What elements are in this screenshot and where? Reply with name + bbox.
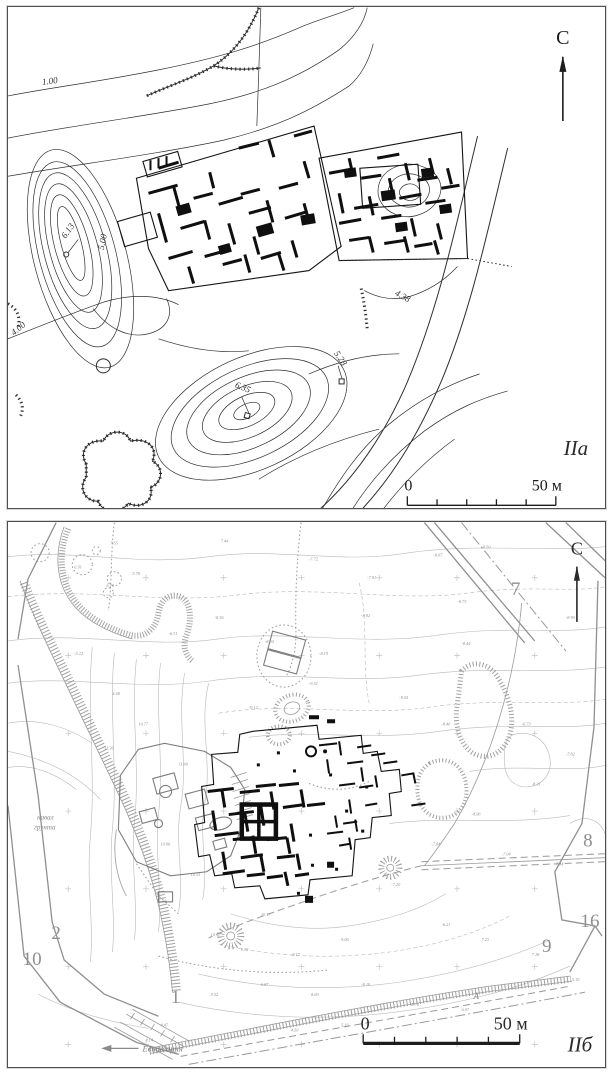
excavation-plan bbox=[117, 126, 511, 291]
benchmark-markers bbox=[64, 239, 344, 418]
map-text: 6.07 bbox=[462, 1007, 470, 1012]
map-text: грунта bbox=[34, 824, 56, 832]
map-annotations: навалгрунта bbox=[34, 814, 56, 832]
map-text: 7.44 bbox=[221, 539, 229, 544]
south-hill-contours bbox=[135, 319, 368, 507]
map-text: -8.56 bbox=[215, 615, 225, 620]
map-text: -7.04 bbox=[502, 852, 512, 857]
scale-bar: 0 50 м bbox=[404, 477, 562, 505]
map-text: -7.82 bbox=[566, 751, 576, 756]
map-text: 4.68 bbox=[112, 691, 120, 696]
map-text: 10 bbox=[23, 949, 42, 970]
map-text: 6.35 bbox=[234, 380, 253, 395]
map-text: -6.21 bbox=[441, 922, 450, 927]
rampart-letter-label: А bbox=[473, 991, 480, 1001]
map-text: 1 bbox=[171, 987, 181, 1008]
map-text: -6.31 bbox=[169, 631, 178, 636]
map-text: -6.73 bbox=[522, 721, 531, 726]
map-text: 11.36 bbox=[104, 745, 114, 750]
scale-end-b: 50 м bbox=[494, 1013, 528, 1033]
map-text: 10.55 bbox=[191, 872, 202, 877]
contour-lines bbox=[8, 8, 508, 508]
north-arrow: С bbox=[556, 27, 569, 121]
map-text: -7.84 bbox=[431, 842, 441, 847]
map-panel-iia: 1.006.135.004.006.355.284.38 С 0 50 м II… bbox=[7, 6, 606, 509]
road-southwest: Евпатория bbox=[101, 1009, 189, 1059]
map-text: 10.96 bbox=[161, 842, 172, 847]
map-text: 10.77 bbox=[138, 721, 149, 726]
map-text: -9.51 bbox=[309, 681, 318, 686]
map-text: -8.31 bbox=[532, 781, 541, 786]
map-text: 7.18 bbox=[532, 952, 540, 957]
wall-blocks bbox=[175, 167, 452, 255]
map-text: -8.92 bbox=[361, 613, 371, 618]
map-text: -8.34 bbox=[265, 639, 275, 644]
map-text: навал bbox=[37, 814, 54, 822]
map-text: 9.06 bbox=[341, 937, 349, 942]
map-text: -8.73 bbox=[458, 599, 467, 604]
scale-bar-b: 0 50 м bbox=[361, 1013, 528, 1043]
map-text: 8.72 bbox=[241, 947, 249, 952]
map-text: -8.96 bbox=[472, 812, 482, 817]
map-text: -8.44 bbox=[462, 641, 472, 646]
map-text: 7.34 bbox=[556, 862, 564, 867]
map-text: -9.05 bbox=[399, 695, 409, 700]
site-numbers: 781692101 bbox=[23, 579, 600, 1008]
map-text: -5.12 bbox=[74, 651, 84, 656]
map-text: -8.19 bbox=[319, 651, 329, 656]
road-destination-label: Евпатория bbox=[141, 1043, 182, 1053]
scale-zero-b: 0 bbox=[361, 1013, 370, 1033]
map-text: 5.70 bbox=[411, 1002, 419, 1007]
panel-caption-iia: IIа bbox=[563, 436, 589, 460]
map-text: 10.17 bbox=[261, 912, 272, 917]
map-text: 4.50 bbox=[291, 1027, 299, 1032]
map-text: 6.13 bbox=[59, 221, 77, 240]
map-text: 5.19 bbox=[572, 977, 580, 982]
map-text: 11.60 bbox=[179, 761, 189, 766]
map-text: 6.87 bbox=[261, 982, 269, 987]
map-text: -7.91 bbox=[367, 575, 376, 580]
map-text: 10.11 bbox=[211, 932, 220, 937]
map-text: 7.65 bbox=[110, 541, 118, 546]
map-text: -8.19 bbox=[361, 982, 371, 987]
map-text: 1.00 bbox=[41, 75, 59, 87]
map-text: 2 bbox=[51, 923, 61, 944]
map-text: 6.70 bbox=[106, 583, 114, 588]
panel-caption-iib: IIб bbox=[567, 1032, 594, 1056]
map-text: 5.16 bbox=[341, 1022, 349, 1027]
map-text: -8.46 bbox=[441, 721, 451, 726]
map-text: -8.17 bbox=[291, 952, 301, 957]
north-letter-b: С bbox=[571, 539, 583, 559]
map-text: 9.52 bbox=[211, 992, 219, 997]
map-text: -7.20 bbox=[391, 882, 401, 887]
map-text: 9 bbox=[542, 936, 552, 957]
relief-hachures bbox=[20, 527, 572, 1054]
contour-labels: 1.006.135.004.006.355.284.38 bbox=[9, 75, 413, 395]
map-text: 16 bbox=[580, 911, 599, 932]
north-arrow-b: С bbox=[571, 539, 583, 622]
map-text: -9.12 bbox=[249, 705, 259, 710]
map-text: 4.38 bbox=[393, 288, 412, 304]
map-text: -8.67 bbox=[433, 553, 443, 558]
map-text: 4.47 bbox=[161, 1022, 169, 1027]
spot-elevations: 6.917.656.705.787.44-7.72-7.91-8.67-8.50… bbox=[74, 539, 580, 1043]
scale-end: 50 м bbox=[532, 477, 562, 494]
scarp-edges bbox=[8, 8, 367, 508]
tree-symbols bbox=[31, 544, 121, 598]
map-iib-canvas: Евпатория 781692101 навалгрунта 6.917.65… bbox=[8, 522, 605, 1067]
north-letter: С bbox=[556, 27, 569, 49]
map-iia-canvas: 1.006.135.004.006.355.284.38 С 0 50 м II… bbox=[8, 7, 605, 508]
map-text: -8.50 bbox=[482, 545, 492, 550]
gray-compound bbox=[115, 743, 253, 914]
west-hill-contours bbox=[8, 138, 154, 379]
map-text: 7.23 bbox=[482, 937, 490, 942]
map-text: 8.69 bbox=[311, 992, 319, 997]
map-text: 4.14 bbox=[145, 1037, 153, 1042]
scale-zero: 0 bbox=[404, 477, 412, 494]
map-text: 6.91 bbox=[74, 565, 82, 570]
map-panel-iib: Евпатория 781692101 навалгрунта 6.917.65… bbox=[7, 521, 606, 1068]
map-text: 8 bbox=[583, 831, 593, 852]
map-text: 7 bbox=[511, 579, 521, 600]
map-text: 4.00 bbox=[9, 319, 28, 337]
map-text: -7.72 bbox=[309, 557, 319, 562]
map-text: 5.78 bbox=[132, 571, 140, 576]
map-text: -8.90 bbox=[566, 615, 576, 620]
map-text: 5.00 bbox=[96, 233, 109, 251]
